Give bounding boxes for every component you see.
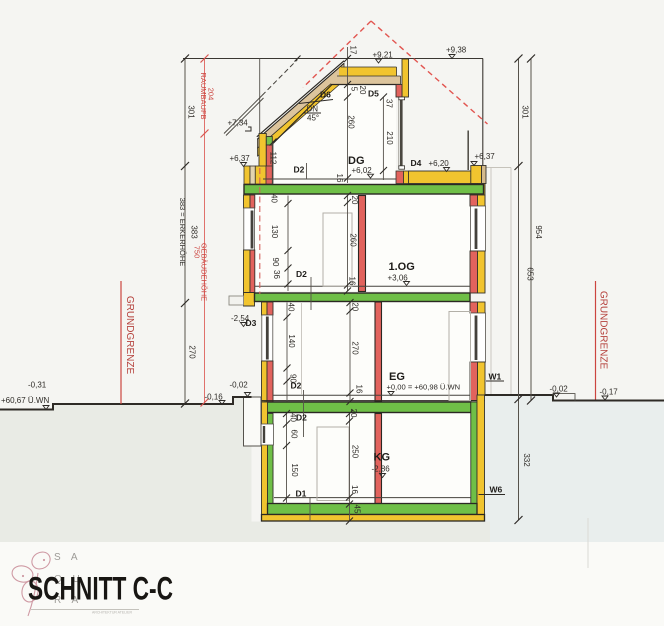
svg-text:16: 16 — [348, 277, 357, 286]
svg-text:ARCHITEKTUR ATELIER: ARCHITEKTUR ATELIER — [92, 611, 132, 615]
svg-text:16: 16 — [335, 174, 344, 183]
svg-text:90: 90 — [271, 258, 280, 267]
svg-text:40: 40 — [287, 303, 296, 312]
svg-text:260: 260 — [347, 115, 356, 129]
svg-text:150: 150 — [290, 463, 299, 477]
svg-text:-0,02: -0,02 — [550, 385, 569, 394]
svg-text:RAUMBAUFB: RAUMBAUFB — [199, 72, 208, 119]
svg-text:37: 37 — [385, 99, 394, 108]
svg-text:270: 270 — [188, 345, 197, 359]
svg-text:954: 954 — [534, 225, 543, 239]
svg-text:210: 210 — [385, 131, 394, 145]
svg-text:+6,37: +6,37 — [475, 152, 496, 161]
svg-text:20: 20 — [351, 302, 360, 311]
svg-text:5: 5 — [350, 87, 359, 92]
svg-text:45°: 45° — [307, 114, 319, 123]
svg-text:W1: W1 — [489, 372, 502, 382]
svg-text:SCHNITT C-C: SCHNITT C-C — [28, 571, 173, 607]
svg-text:+7,34: +7,34 — [228, 119, 249, 128]
svg-text:D2: D2 — [294, 164, 305, 174]
svg-text:383 = ERKERHÖHE: 383 = ERKERHÖHE — [178, 198, 187, 267]
svg-text:90: 90 — [289, 374, 298, 383]
svg-text:+6,02: +6,02 — [352, 166, 373, 175]
svg-text:270: 270 — [351, 341, 360, 355]
svg-text:DG: DG — [348, 155, 365, 167]
svg-text:45: 45 — [353, 505, 362, 514]
svg-text:GRUNDGRENZE: GRUNDGRENZE — [598, 291, 609, 370]
svg-text:+6,37: +6,37 — [230, 154, 251, 163]
svg-text:40: 40 — [270, 194, 279, 203]
svg-text:DN: DN — [307, 105, 319, 114]
svg-text:D1: D1 — [296, 489, 307, 499]
svg-text:20: 20 — [349, 409, 358, 418]
svg-text:20: 20 — [358, 86, 367, 95]
svg-text:D4: D4 — [411, 158, 422, 168]
svg-text:GEBÄUDEHÖHE: GEBÄUDEHÖHE — [200, 243, 209, 301]
svg-text:383: 383 — [190, 225, 199, 239]
svg-text:260: 260 — [349, 233, 358, 247]
svg-text:KG: KG — [374, 452, 391, 464]
svg-text:653: 653 — [526, 267, 535, 281]
svg-text:40: 40 — [289, 413, 298, 422]
svg-text:36: 36 — [272, 270, 281, 279]
svg-text:D5: D5 — [368, 89, 379, 99]
svg-text:60: 60 — [290, 430, 299, 439]
svg-text:-0,31: -0,31 — [28, 381, 47, 390]
svg-text:+9,21: +9,21 — [373, 51, 394, 60]
svg-text:140: 140 — [287, 334, 296, 348]
svg-text:-0,17: -0,17 — [600, 388, 619, 397]
svg-text:D3: D3 — [246, 318, 257, 328]
svg-text:-2,86: -2,86 — [372, 465, 391, 474]
svg-text:16: 16 — [350, 485, 359, 494]
svg-text:W6: W6 — [490, 485, 503, 495]
svg-text:D6: D6 — [320, 90, 331, 100]
svg-text:+6,20: +6,20 — [429, 159, 450, 168]
svg-text:+0,00 = +60,98 Ü.WN: +0,00 = +60,98 Ü.WN — [387, 383, 461, 392]
svg-text:250: 250 — [351, 445, 360, 459]
svg-text:EG: EG — [389, 371, 405, 383]
svg-text:D2: D2 — [296, 269, 307, 279]
svg-text:+60,67 Ü.WN: +60,67 Ü.WN — [1, 396, 49, 405]
svg-text:1.OG: 1.OG — [389, 261, 415, 273]
svg-text:301: 301 — [521, 105, 530, 119]
svg-text:-0,02: -0,02 — [230, 381, 249, 390]
svg-text:20: 20 — [350, 196, 359, 205]
svg-text:+9,38: +9,38 — [446, 46, 467, 55]
svg-text:S A: S A — [54, 552, 82, 563]
svg-text:GRUNDGRENZE: GRUNDGRENZE — [124, 296, 135, 375]
svg-text:16: 16 — [355, 385, 364, 394]
svg-text:301: 301 — [187, 105, 196, 119]
svg-text:112: 112 — [269, 152, 278, 165]
svg-text:332: 332 — [522, 453, 531, 467]
svg-text:17: 17 — [349, 46, 358, 55]
svg-text:130: 130 — [270, 225, 279, 239]
